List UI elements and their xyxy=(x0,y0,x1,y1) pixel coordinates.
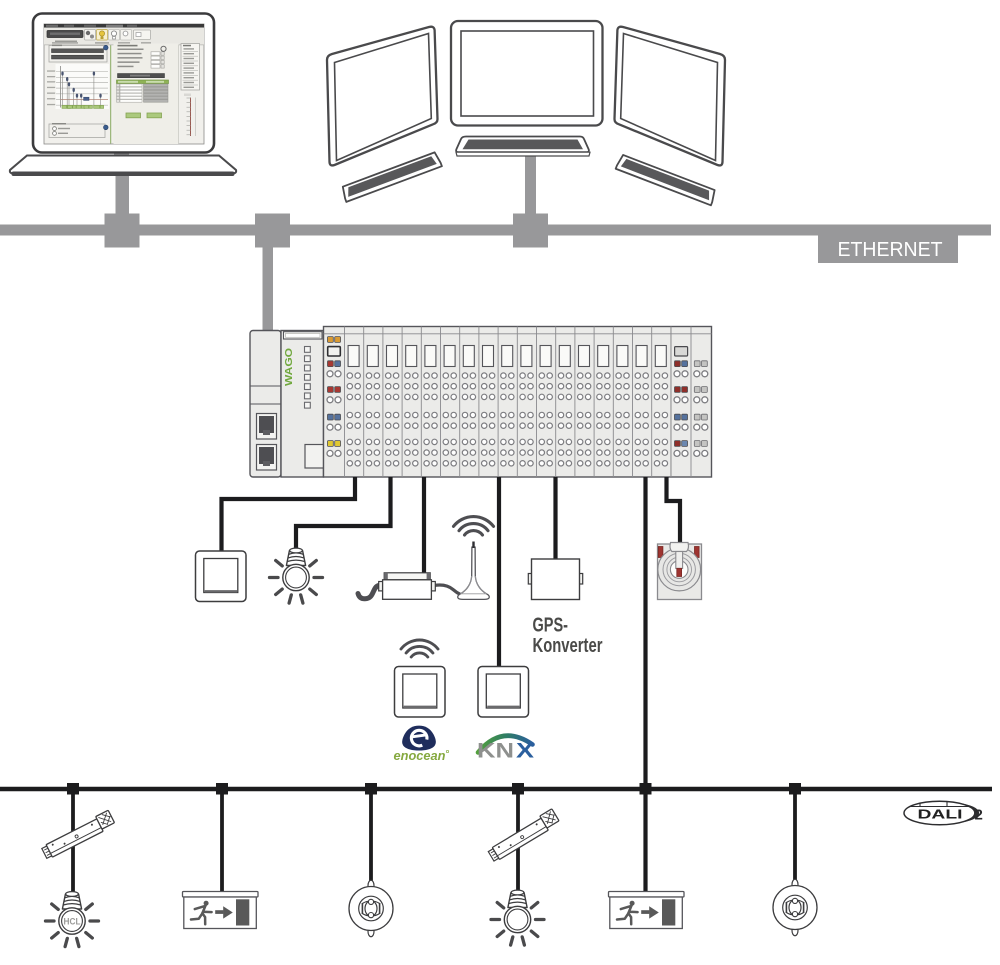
svg-text:2: 2 xyxy=(975,807,983,824)
svg-text:ETHERNET: ETHERNET xyxy=(838,239,943,261)
svg-text:WAGO: WAGO xyxy=(284,348,295,386)
svg-text:Konverter: Konverter xyxy=(533,634,603,657)
svg-text:KN: KN xyxy=(477,739,514,763)
svg-text:HCL: HCL xyxy=(64,917,81,928)
svg-text:enocean: enocean xyxy=(394,749,446,763)
svg-text:DALI: DALI xyxy=(918,807,963,822)
svg-text:X: X xyxy=(516,739,535,763)
